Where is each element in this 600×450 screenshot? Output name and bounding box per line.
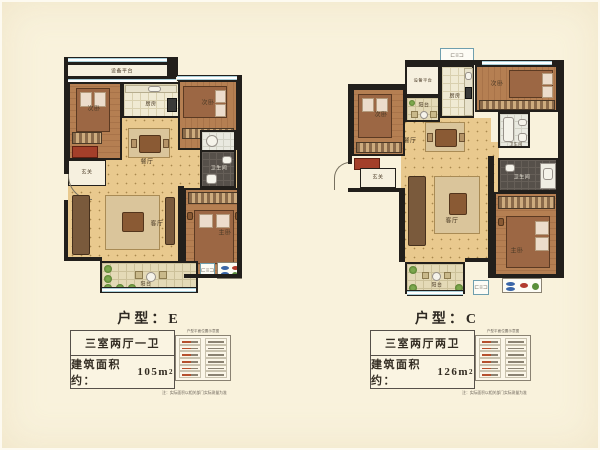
closet — [479, 100, 555, 110]
window-strip — [407, 290, 463, 296]
wall-segment — [64, 200, 68, 261]
legend-column — [479, 338, 501, 378]
plant-icon — [409, 100, 415, 106]
equipment-platform-label: 设备平台 — [111, 69, 133, 76]
room-kitchen: 厨房 — [440, 65, 474, 118]
legend-cell — [179, 358, 201, 365]
bathroom1-label: 卫生间 — [509, 142, 522, 148]
legend-cell — [479, 351, 501, 358]
entry-label: 玄关 — [372, 175, 383, 182]
area-label: 建筑面积约： — [371, 356, 437, 388]
bedroom-left-label: 次卧 — [87, 107, 100, 114]
pillow — [215, 104, 226, 117]
kitchen-label: 厨房 — [449, 94, 460, 101]
wall-segment — [348, 84, 405, 88]
nightstand — [498, 218, 504, 226]
cabinet — [72, 146, 98, 158]
toilet — [518, 133, 527, 142]
pillow — [216, 214, 230, 228]
chair — [163, 139, 169, 148]
legend-cell — [505, 345, 527, 352]
living-label: 客厅 — [445, 219, 458, 226]
dining-table — [139, 135, 161, 153]
window-strip — [102, 287, 196, 293]
closet — [498, 196, 555, 209]
legend-cell — [505, 338, 527, 345]
legend-cell — [479, 365, 501, 372]
room-equipment-platform: 设备平台 — [405, 65, 440, 96]
room-bedroom-top: 次卧 — [475, 65, 558, 112]
legend-cell — [205, 371, 227, 378]
chair — [459, 133, 465, 142]
legend-column — [205, 338, 227, 378]
chair — [131, 139, 137, 148]
plan-e-spec: 三室两厅一卫 — [71, 331, 174, 355]
slipper-tray — [502, 278, 542, 293]
sofa — [408, 176, 426, 246]
door-arc — [334, 162, 350, 190]
legend-cell — [505, 365, 527, 372]
room-bedroom-left: 次卧 — [68, 82, 122, 160]
pillow — [542, 86, 553, 98]
patio-table — [146, 272, 156, 282]
legend-cell — [179, 371, 201, 378]
plan-c-area: 建筑面积约：126m2 — [371, 355, 474, 388]
coffee-table — [122, 212, 144, 232]
area-unit: m — [458, 366, 469, 378]
legend-cell — [479, 371, 501, 378]
plant-icon — [532, 283, 539, 290]
wall-segment — [348, 84, 352, 164]
wall-segment — [348, 188, 399, 192]
legend-cell — [479, 358, 501, 365]
legend-cell — [179, 351, 201, 358]
room-bathroom-2: 卫生间 — [498, 158, 558, 192]
patio-chair — [159, 271, 167, 279]
room-bathroom-1: 卫生间 — [498, 112, 530, 148]
legend-column — [505, 338, 527, 378]
pillow — [80, 92, 92, 107]
legend-cell — [179, 365, 201, 372]
legend-cell — [205, 351, 227, 358]
slipper-icon — [221, 266, 229, 270]
bed-marker-icon: ⊏≡⊐ — [473, 280, 489, 295]
pillow — [535, 237, 549, 251]
armchair — [165, 197, 175, 245]
closet — [356, 142, 402, 153]
legend-column — [179, 338, 201, 378]
pillow — [215, 90, 226, 103]
legend-cell — [505, 371, 527, 378]
patio-chair — [444, 272, 451, 279]
bathroom-label: 卫生间 — [211, 166, 228, 173]
room-balcony-top: 阳台 — [405, 96, 440, 122]
area-unit-sup: 2 — [169, 368, 174, 376]
basin — [518, 119, 527, 126]
area-unit-sup: 2 — [469, 368, 474, 376]
legend-cell — [479, 338, 501, 345]
floorplan-e: 设备平台 次卧 厨房 — [64, 56, 246, 296]
plan-c-infobox: 三室两厅两卫 建筑面积约：126m2 — [370, 330, 475, 389]
patio-chair — [430, 111, 437, 118]
legend-cell — [205, 358, 227, 365]
wall-segment — [68, 257, 102, 261]
pillow — [535, 221, 549, 235]
plant-icon — [104, 275, 112, 283]
basin — [505, 164, 515, 172]
area-unit: m — [158, 366, 169, 378]
area-value: 105 — [137, 366, 158, 378]
chair — [427, 133, 433, 142]
slipper-icon — [506, 282, 515, 286]
wall-segment — [167, 57, 178, 77]
slipper-icon — [520, 283, 528, 288]
washer — [206, 135, 218, 147]
wall-segment — [184, 274, 242, 278]
sofa — [72, 195, 90, 255]
master-label: 主卧 — [510, 249, 523, 256]
equipment-platform-label: 设备平台 — [414, 78, 433, 84]
sink — [465, 72, 472, 80]
toilet — [206, 174, 217, 184]
balcony-label: 阳台 — [431, 283, 442, 290]
kitchen-label: 厨房 — [145, 102, 156, 109]
legend-cell — [505, 358, 527, 365]
wall-segment — [399, 188, 405, 262]
legend-cell — [205, 365, 227, 372]
plan-c-note: 注：实际面积以相关部门实际测量为准 — [403, 390, 527, 396]
dining-label: 餐厅 — [140, 160, 153, 167]
area-label: 建筑面积约： — [71, 356, 137, 388]
wall-segment — [237, 75, 242, 278]
patio-chair — [135, 271, 143, 279]
slipper-icon — [506, 287, 515, 291]
bathtub — [503, 117, 514, 142]
wall-segment — [64, 57, 68, 174]
plan-c-legend: 户型平面位置示意图 — [475, 328, 531, 381]
patio-chair — [422, 272, 429, 279]
patio-chair — [411, 111, 418, 118]
area-value: 126 — [437, 366, 458, 378]
balcony-top-label: 阳台 — [418, 103, 429, 110]
nightstand — [187, 212, 193, 220]
dining-label: 餐厅 — [403, 139, 416, 146]
bathroom2-label: 卫生间 — [514, 175, 531, 182]
laundry-area — [200, 130, 236, 152]
dining-rug — [128, 128, 170, 158]
bedroom-top-label: 次卧 — [490, 82, 503, 89]
plan-e-note: 注：实际面积以相关部门实际测量为准 — [103, 390, 227, 396]
bedroom-left-label: 次卧 — [374, 113, 387, 120]
dining-rug — [425, 122, 465, 152]
living-label: 客厅 — [150, 222, 163, 229]
sink — [148, 86, 161, 92]
legend-cell — [505, 351, 527, 358]
plan-c-title: 户型：C — [362, 308, 532, 328]
coffee-table — [449, 193, 467, 215]
pillow — [199, 214, 213, 228]
legend-title: 户型平面位置示意图 — [178, 328, 228, 333]
pillow — [94, 92, 106, 107]
closet — [72, 132, 102, 144]
closet — [188, 192, 239, 204]
bed — [506, 216, 550, 268]
legend-title: 户型平面位置示意图 — [478, 328, 528, 333]
room-bedroom-left: 次卧 — [352, 88, 405, 156]
bedroom-top-label: 次卧 — [201, 101, 214, 108]
room-kitchen: 厨房 — [122, 82, 180, 118]
floorplan-c: ⊏≡⊐ 设备平台 厨房 次卧 阳台 — [342, 46, 566, 296]
plant-icon — [104, 265, 112, 273]
legend-cell — [479, 345, 501, 352]
pillow — [542, 73, 553, 85]
plan-e-legend: 户型平面位置示意图 — [175, 328, 231, 381]
pillow — [376, 98, 388, 112]
stove — [465, 87, 472, 99]
stove — [167, 98, 177, 112]
legend-cell — [179, 345, 201, 352]
floorplan-sheet: 设备平台 次卧 厨房 — [0, 0, 600, 450]
plan-e-area: 建筑面积约：105m2 — [71, 355, 174, 388]
legend-cell — [205, 338, 227, 345]
patio-table — [432, 272, 441, 281]
wall-segment — [558, 60, 564, 278]
room-entry: 玄关 — [360, 168, 396, 188]
wall-segment — [465, 258, 491, 262]
room-bathroom: 卫生间 — [200, 150, 236, 188]
wall-segment — [494, 274, 564, 278]
legend-table — [475, 335, 531, 381]
patio-table — [420, 111, 428, 119]
room-equipment-platform: 设备平台 — [65, 63, 176, 78]
plan-e-infobox: 三室两厅一卫 建筑面积约：105m2 — [70, 330, 175, 389]
toilet — [543, 168, 553, 180]
legend-cell — [205, 345, 227, 352]
room-master: 主卧 — [494, 192, 558, 278]
basin — [222, 156, 232, 164]
plan-c-spec: 三室两厅两卫 — [371, 331, 474, 355]
pillow — [362, 98, 374, 112]
legend-table — [175, 335, 231, 381]
legend-cell — [179, 338, 201, 345]
plant-icon — [409, 266, 417, 274]
bed — [509, 70, 553, 98]
plan-e-title: 户型：E — [64, 308, 234, 328]
dining-table — [435, 129, 457, 147]
master-label: 主卧 — [218, 231, 231, 238]
